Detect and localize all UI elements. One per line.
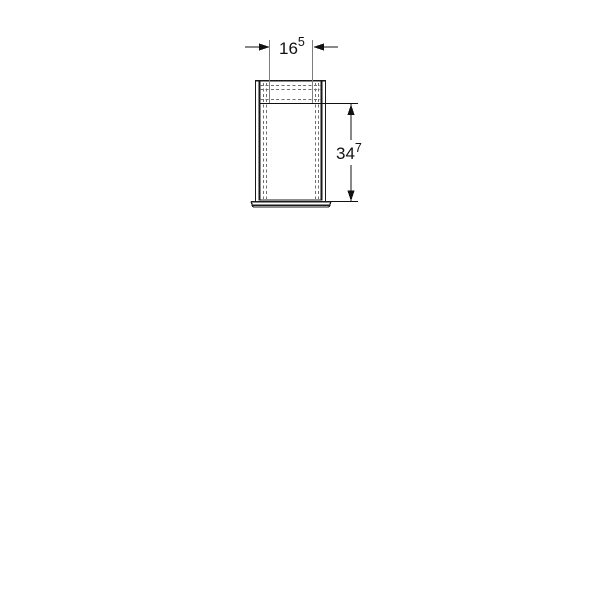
height-arrowhead-down-icon [347, 191, 354, 202]
technical-drawing-page: 165 347 [0, 0, 600, 600]
dimension-height: 347 [261, 104, 362, 202]
width-arrowhead-right-icon [313, 43, 324, 50]
dimension-drawing-canvas: 165 347 [0, 0, 600, 600]
width-value: 16 [279, 39, 298, 58]
height-dimension-label: 347 [336, 141, 362, 163]
width-value-superscript: 5 [298, 35, 305, 49]
height-value: 34 [336, 144, 355, 163]
width-arrowhead-left-icon [259, 43, 270, 50]
height-arrowhead-up-icon [347, 104, 354, 115]
height-value-superscript: 7 [355, 141, 362, 155]
width-dimension-label: 165 [279, 35, 305, 58]
